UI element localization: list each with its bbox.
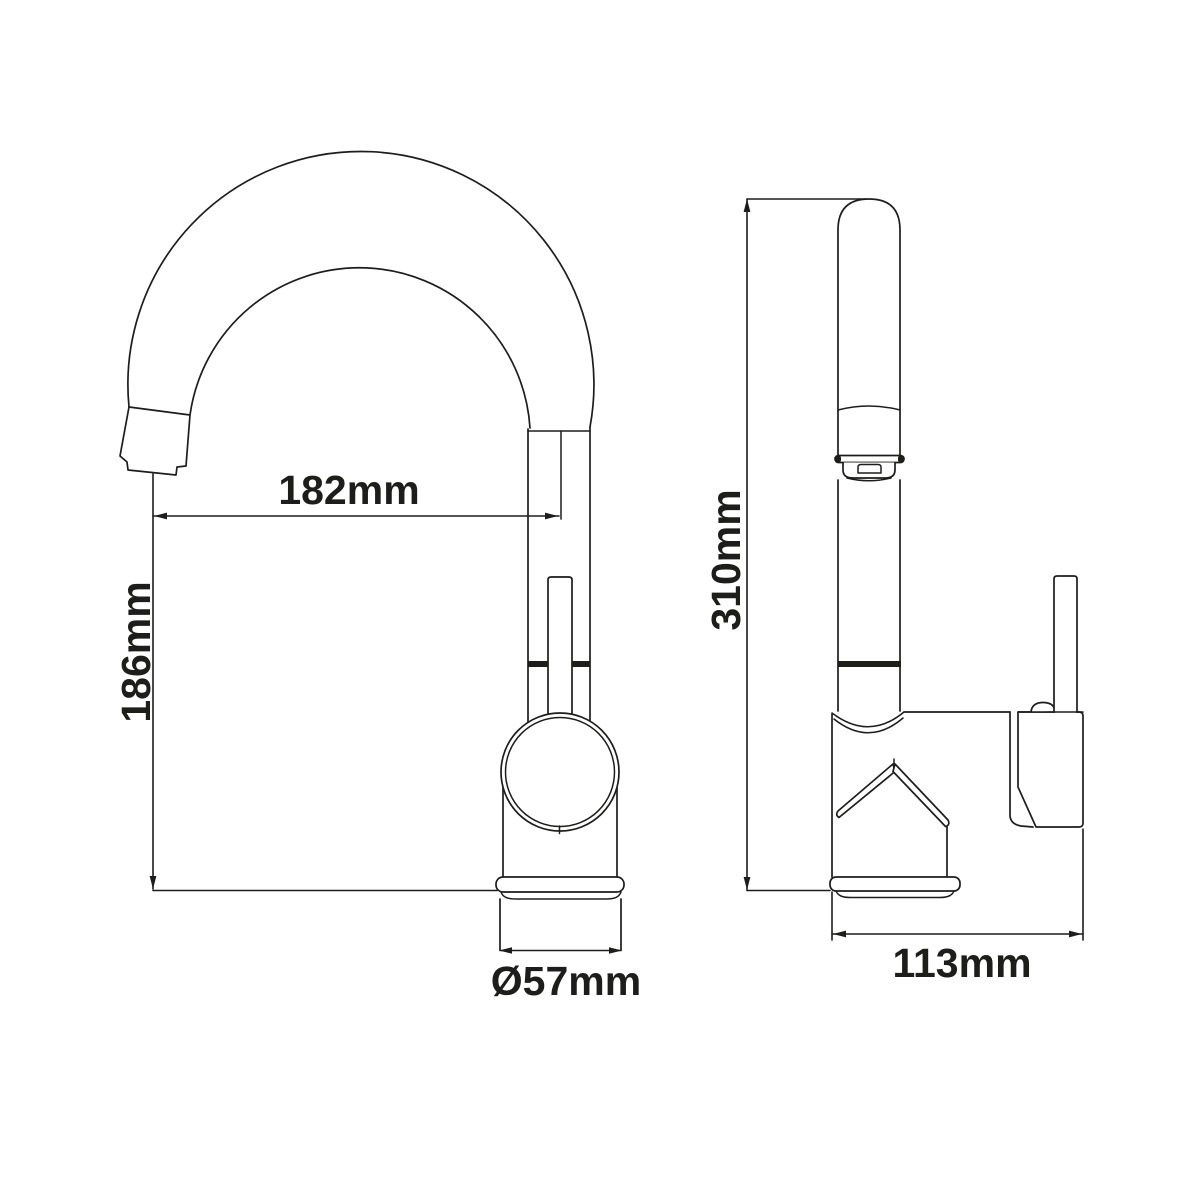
side-view xyxy=(120,151,624,950)
spray-head-seam xyxy=(838,406,900,410)
dim-label-body-width: 113mm xyxy=(892,940,1031,986)
dimension-body-width: 113mm xyxy=(832,829,1083,986)
spout-arc xyxy=(128,151,594,428)
dim-label-spout-height: 186mm xyxy=(113,581,159,722)
dimension-overall-height: 310mm xyxy=(703,199,866,891)
dim-label-spout-reach: 182mm xyxy=(278,467,419,513)
dim-label-overall-height: 310mm xyxy=(703,489,749,630)
mixer-handle xyxy=(1018,576,1083,827)
faucet-technical-drawing: 182mm 186mm Ø57mm 310mm 113mm xyxy=(0,0,1200,1200)
base-flange-front xyxy=(830,877,960,898)
spray-outlet xyxy=(835,456,904,481)
front-view xyxy=(830,199,1083,898)
base-flange xyxy=(496,877,624,950)
valve-housing xyxy=(501,713,619,834)
handle-lever xyxy=(548,577,572,719)
lever-pivot-dome xyxy=(1031,703,1055,713)
body-chevron xyxy=(837,759,949,827)
dim-label-base-diameter: Ø57mm xyxy=(491,958,641,1004)
handle-lever-front xyxy=(1054,576,1077,713)
valve-body xyxy=(832,712,1033,877)
handle-body xyxy=(1018,712,1083,827)
dimension-spout-height: 186mm xyxy=(113,474,497,891)
spout-tip xyxy=(120,407,190,475)
column-joint-band xyxy=(838,661,901,667)
drawing-canvas: 182mm 186mm Ø57mm 310mm 113mm xyxy=(0,0,1200,1200)
dimension-base-diameter: Ø57mm xyxy=(491,947,641,1004)
dimension-spout-reach: 182mm xyxy=(153,467,559,519)
